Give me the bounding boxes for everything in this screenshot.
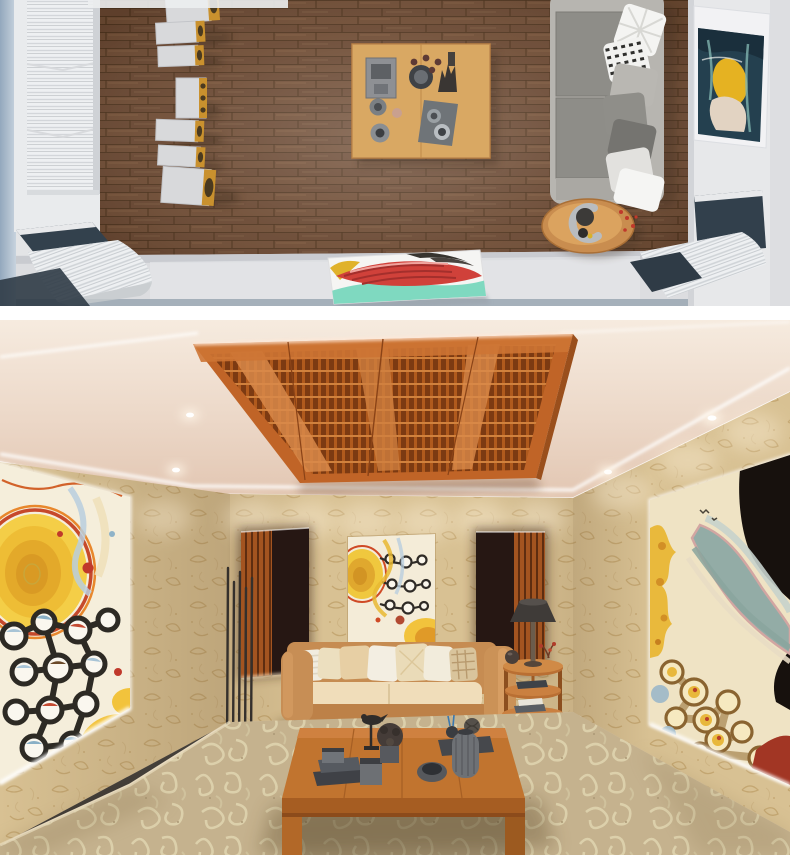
- serving-tray: [418, 100, 458, 146]
- speaker: [156, 119, 205, 142]
- speaker: [158, 45, 205, 67]
- speaker: [156, 21, 206, 45]
- abstract-canvas-rug: [328, 250, 490, 306]
- gray-sofa: [550, 0, 676, 213]
- tabletop-device: [366, 58, 396, 98]
- top-wall-edge: [88, 0, 288, 8]
- panel-divider: [0, 306, 790, 320]
- wall-painting-top-scene: [694, 6, 770, 148]
- interior-render-collage: [0, 0, 790, 855]
- center-speaker: [176, 78, 207, 118]
- left-edge-wall: [0, 0, 16, 306]
- speaker: [158, 145, 206, 167]
- speaker: [161, 166, 216, 206]
- top-view-render: [0, 0, 790, 306]
- left-acoustic-diffuser-wall: [14, 0, 100, 232]
- perspective-render: [0, 320, 790, 855]
- coffee-table-top-view: [352, 44, 498, 166]
